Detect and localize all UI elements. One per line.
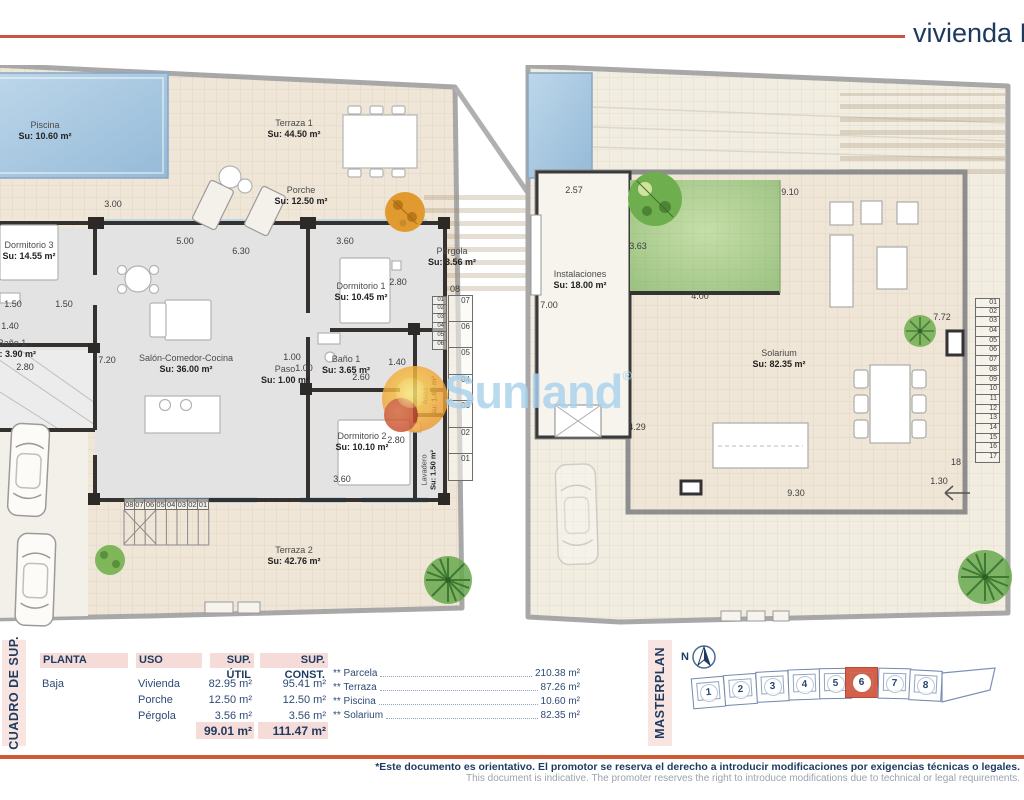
disclaimer-en: This document is indicative. The promote… — [466, 773, 1020, 784]
car-1 — [7, 423, 50, 517]
dim: 18 — [951, 457, 961, 467]
stair-step: 04 — [432, 323, 447, 332]
stair-step: 07 — [135, 498, 146, 510]
dim: 1.40 — [388, 357, 406, 367]
pergola-roof — [840, 93, 1005, 181]
cell-const: 12.50 m² — [283, 694, 326, 706]
stair-step-label: 08 — [450, 284, 460, 294]
cell-const: 3.56 m² — [289, 710, 326, 722]
dim: 3.00 — [104, 199, 122, 209]
masterplan-unit-8: 8 — [908, 669, 943, 702]
palm-small — [904, 315, 936, 347]
masterplan-unit-4: 4 — [787, 668, 821, 700]
total-const: 111.47 m² — [273, 724, 326, 738]
stair-step: 07 — [975, 356, 1000, 366]
stair-step: 06 — [448, 322, 473, 349]
brochure-page: vivienda N — [0, 0, 1024, 800]
room-label-piscina: PiscinaSu: 10.60 m² — [18, 120, 71, 142]
car-2 — [15, 533, 56, 626]
stair-step: 03 — [432, 314, 447, 323]
palm-tree — [958, 550, 1012, 604]
dim: 6.30 — [232, 246, 250, 256]
col-header-planta: PLANTA — [40, 653, 128, 668]
extra-terraza: ** Terraza87.26 m² — [333, 682, 580, 693]
stair-step: 14 — [975, 424, 1000, 434]
room-label-terraza2: Terraza 2Su: 42.76 m² — [267, 545, 320, 567]
cell-util: 12.50 m² — [209, 694, 252, 706]
dim: 2.60 — [352, 372, 370, 382]
stair-step: 03 — [177, 498, 188, 510]
stair-step: 07 — [448, 295, 473, 322]
room-label-porche: PorcheSu: 12.50 m² — [274, 185, 327, 207]
stair-step: 05 — [432, 332, 447, 341]
room-label-lavadero: LavaderoSu: 1.50 m² — [420, 450, 437, 490]
footer-rule — [0, 755, 1024, 759]
dim: 3.60 — [333, 474, 351, 484]
garage-area — [0, 350, 95, 430]
cell-uso: Porche — [138, 694, 173, 706]
dim: 1.50 — [55, 299, 73, 309]
stair-step: 01 — [432, 296, 447, 305]
stair-step: 02 — [188, 498, 199, 510]
stair-step: 11 — [975, 395, 1000, 405]
masterplan-unit-3: 3 — [755, 670, 790, 703]
stair-step: 05 — [156, 498, 167, 510]
dim: 4.00 — [691, 291, 709, 301]
stair-step: 01 — [448, 454, 473, 481]
stair-step: 01 — [975, 298, 1000, 308]
stair-step: 08 — [975, 366, 1000, 376]
room-label-terraza1: Terraza 1Su: 44.50 m² — [267, 118, 320, 140]
palm-tree — [424, 556, 472, 604]
dim: 1.00 — [283, 352, 301, 362]
cell-uso: Vivienda — [138, 678, 180, 690]
stair-step: 02 — [432, 305, 447, 314]
extra-piscina: ** Piscina10.60 m² — [333, 696, 580, 707]
dim: 1.40 — [1, 321, 19, 331]
stair-step: 13 — [975, 414, 1000, 424]
dim: 7.72 — [933, 312, 951, 322]
dim: 3.60 — [336, 236, 354, 246]
disclaimer-es: *Este documento es orientativo. El promo… — [375, 761, 1020, 773]
solarium-stair: 0102030405060708091011121314151617 — [975, 298, 1000, 463]
col-header-uso: USO — [136, 653, 202, 668]
masterplan-strip: MASTERPLAN — [648, 640, 672, 746]
header-rule — [0, 35, 905, 38]
col-header-const: SUP. CONST. — [260, 653, 328, 668]
north-label: N — [681, 651, 689, 663]
terrace-stair: 0807060504030201 — [124, 498, 209, 510]
extra-parcela: ** Parcela210.38 m² — [333, 668, 580, 679]
stair-step: 09 — [975, 376, 1000, 386]
tree-green-small — [95, 545, 125, 575]
stair-step: 06 — [975, 346, 1000, 356]
dim: 1.30 — [930, 476, 948, 486]
page-title: vivienda N — [913, 18, 1024, 49]
stair-step: 16 — [975, 443, 1000, 453]
stair-step: 10 — [975, 385, 1000, 395]
cell-const: 95.41 m² — [283, 678, 326, 690]
ghost-car — [555, 464, 598, 565]
dim: 1.00 — [295, 363, 313, 373]
dim: 1.50 — [4, 299, 22, 309]
stair-step: 03 — [975, 317, 1000, 327]
dim: 7.20 — [98, 355, 116, 365]
stair-step: 12 — [975, 405, 1000, 415]
stair-step: 08 — [124, 498, 135, 510]
interior-stair: 010203040506 — [432, 296, 447, 350]
stair-step: 01 — [198, 498, 209, 510]
stair-step: 02 — [975, 308, 1000, 318]
stair-step: 17 — [975, 453, 1000, 463]
stair-step: 02 — [448, 428, 473, 455]
room-label-bano1-izq: Baño 1Su: 3.90 m² — [0, 338, 36, 360]
stair-step: 04 — [448, 375, 473, 402]
dim: 2.80 — [387, 435, 405, 445]
masterplan-unit-7: 7 — [878, 668, 912, 700]
dim: 9.10 — [781, 187, 799, 197]
stair-step: 05 — [448, 348, 473, 375]
dim: 2.57 — [565, 185, 583, 195]
masterplan-unit-1: 1 — [691, 676, 727, 710]
room-label-pergola: PérgolaSu: 3.56 m² — [428, 246, 476, 268]
room-label-aseo: AseoSu: 1.60 m² — [421, 376, 438, 416]
stair-step: 05 — [975, 337, 1000, 347]
dim: 2.80 — [16, 362, 34, 372]
room-label-solarium: SolariumSu: 82.35 m² — [752, 348, 805, 370]
room-label-salon: Salón-Comedor-CocinaSu: 36.00 m² — [139, 353, 233, 375]
dim: 7.00 — [540, 300, 558, 310]
stair-step: 15 — [975, 434, 1000, 444]
dim: 5.00 — [176, 236, 194, 246]
dim: 9.30 — [787, 488, 805, 498]
dim: 3.63 — [629, 241, 647, 251]
room-label-dormitorio3: Dormitorio 3Su: 14.55 m² — [2, 240, 55, 262]
masterplan-unit-2: 2 — [723, 673, 758, 706]
cell-util: 3.56 m² — [215, 710, 252, 722]
cell-util: 82.95 m² — [209, 678, 252, 690]
dim: 4.29 — [628, 422, 646, 432]
dim: 2.80 — [389, 277, 407, 287]
tree-orange — [385, 192, 425, 232]
room-label-dormitorio2: Dormitorio 2Su: 10.10 m² — [335, 431, 388, 453]
room-label-dormitorio1: Dormitorio 1Su: 10.45 m² — [334, 281, 387, 303]
masterplan-unit-6-highlighted: 6 — [845, 667, 878, 698]
total-util: 99.01 m² — [204, 724, 252, 738]
cuadro-strip: CUADRO DE SUP. — [2, 640, 26, 746]
cell-uso: Pérgola — [138, 710, 176, 722]
stair-step: 04 — [166, 498, 177, 510]
stair-step: 03 — [448, 401, 473, 428]
stair-step: 04 — [975, 327, 1000, 337]
stair-step: 06 — [145, 498, 156, 510]
room-label-instalaciones: InstalacionesSu: 18.00 m² — [553, 269, 606, 291]
tree-green-big — [628, 172, 682, 226]
masterplan-tail — [940, 666, 1000, 708]
extra-solarium: ** Solarium82.35 m² — [333, 710, 580, 721]
pool — [528, 73, 592, 178]
cell-planta: Baja — [42, 678, 64, 690]
stair-step: 06 — [432, 341, 447, 350]
exterior-stair: 07060504030201 — [448, 295, 473, 481]
compass-icon — [691, 644, 717, 670]
col-header-util: SUP. ÚTIL — [210, 653, 254, 668]
